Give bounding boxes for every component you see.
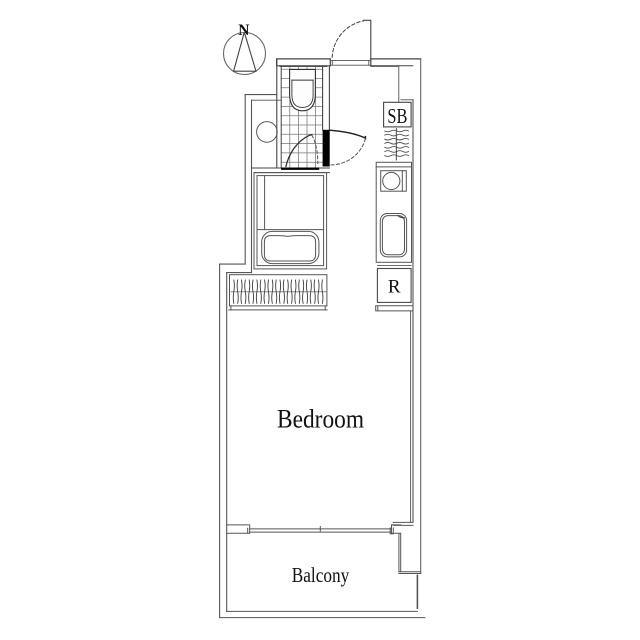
svg-text:SB: SB (387, 104, 407, 128)
svg-text:Balcony: Balcony (292, 563, 350, 587)
svg-text:N: N (238, 22, 249, 39)
svg-text:R: R (388, 277, 401, 298)
svg-text:Bedroom: Bedroom (277, 405, 364, 434)
